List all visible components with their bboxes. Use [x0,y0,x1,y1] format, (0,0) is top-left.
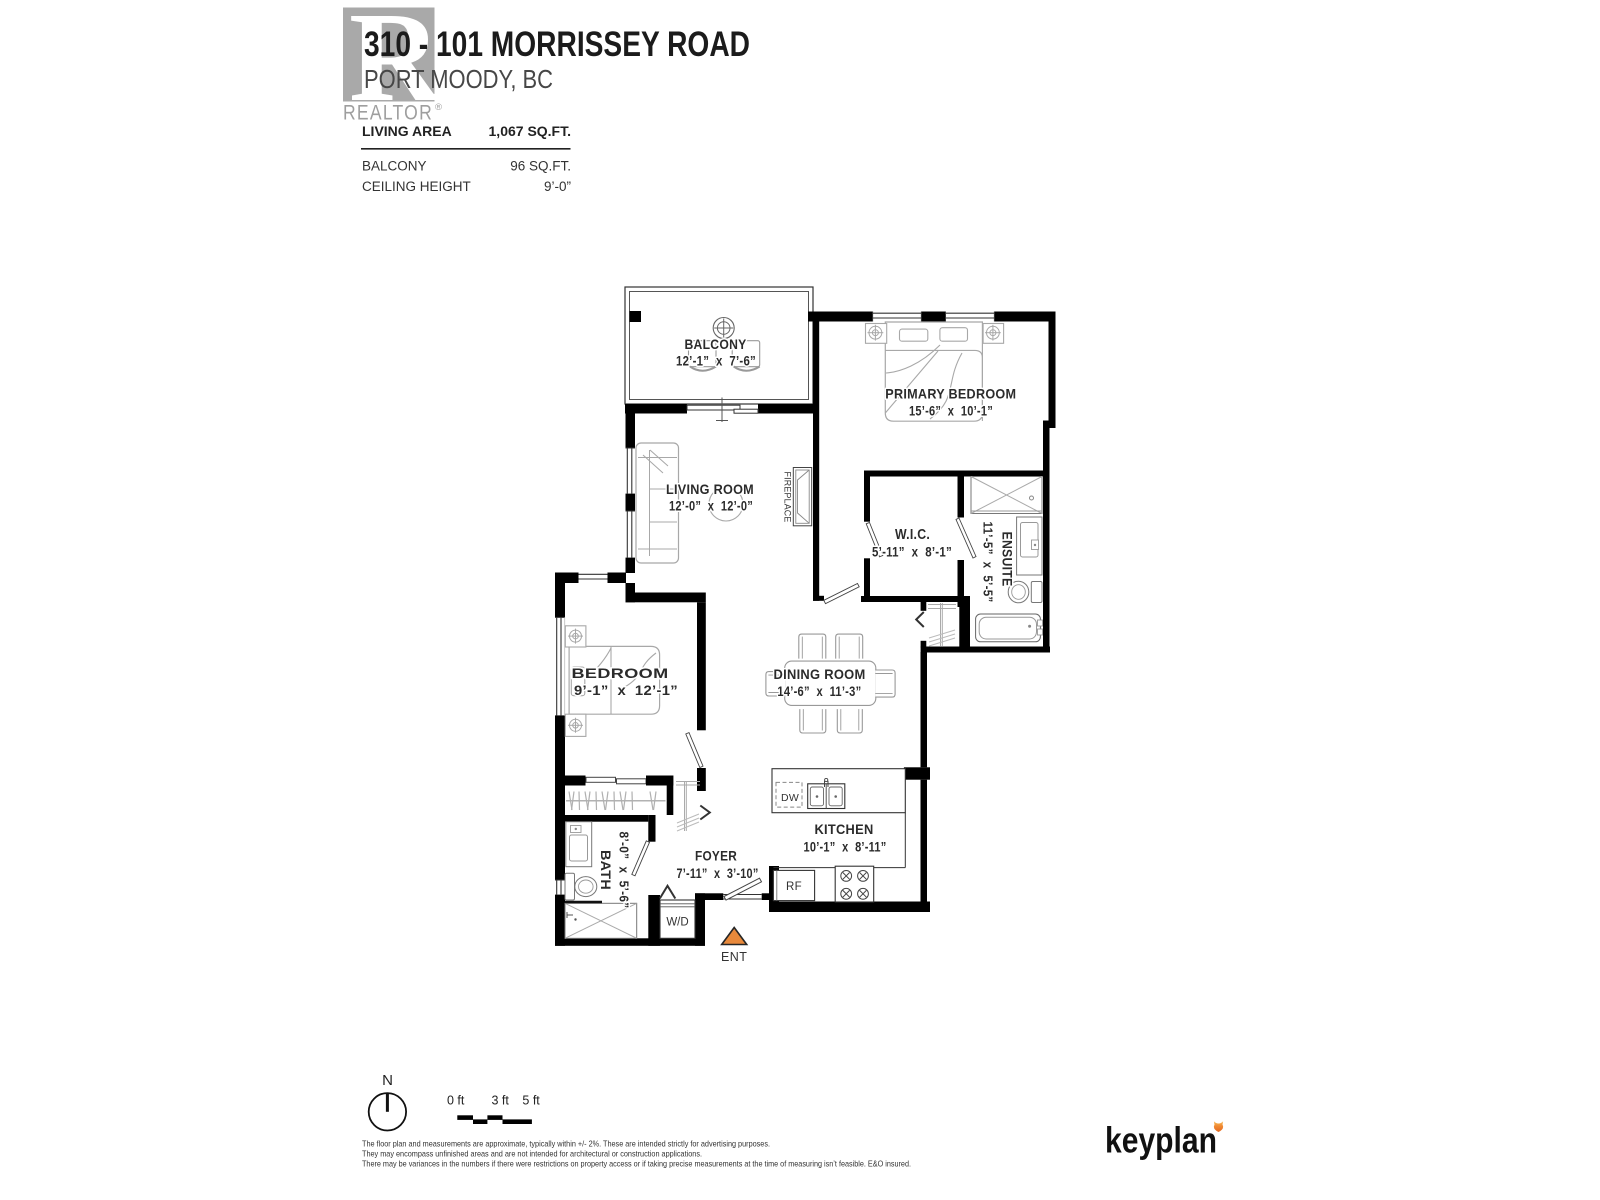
svg-text:96 SQ.FT.: 96 SQ.FT. [510,159,571,174]
svg-text:7’-11” x 3’-10”: 7’-11” x 3’-10” [677,866,759,881]
svg-text:10’-1” x 8’-11”: 10’-1” x 8’-11” [804,840,887,855]
svg-text:FOYER: FOYER [695,848,737,864]
svg-text:REALTOR: REALTOR [343,102,433,125]
svg-text:KITCHEN: KITCHEN [815,821,874,837]
svg-text:RF: RF [786,881,802,893]
svg-text:ENSUITE: ENSUITE [1000,532,1015,587]
svg-text:BALCONY: BALCONY [685,336,747,352]
svg-text:5’-11” x 8’-1”: 5’-11” x 8’-1” [872,545,952,560]
svg-text:LIVING ROOM: LIVING ROOM [666,481,754,497]
svg-text:0 ft: 0 ft [447,1094,465,1108]
svg-text:BALCONY: BALCONY [362,159,427,174]
svg-text:BATH: BATH [598,850,614,890]
svg-text:BEDROOM: BEDROOM [572,665,669,681]
svg-text:9’-0”: 9’-0” [544,179,571,194]
svg-text:They may encompass unfinished: They may encompass unfinished areas and … [362,1149,702,1159]
svg-text:keyplan: keyplan [1105,1120,1217,1161]
svg-text:FIREPLACE: FIREPLACE [782,472,793,523]
svg-text:®: ® [435,102,442,113]
svg-text:3 ft: 3 ft [492,1094,510,1108]
svg-text:There may be variances in the: There may be variances in the numbers if… [362,1159,911,1169]
svg-text:1,067 SQ.FT.: 1,067 SQ.FT. [489,123,571,139]
svg-text:CEILING HEIGHT: CEILING HEIGHT [362,179,471,194]
svg-text:ENT: ENT [721,950,748,964]
svg-text:LIVING AREA: LIVING AREA [362,123,452,139]
svg-text:5 ft: 5 ft [522,1094,540,1108]
svg-text:DINING ROOM: DINING ROOM [774,666,866,682]
svg-text:310 - 101 MORRISSEY ROAD: 310 - 101 MORRISSEY ROAD [364,25,750,64]
svg-text:The floor plan and measurement: The floor plan and measurements are appr… [362,1139,770,1149]
svg-text:14’-6” x 11’-3”: 14’-6” x 11’-3” [777,684,861,699]
svg-text:11’-5” x 5’-5”: 11’-5” x 5’-5” [981,522,996,603]
svg-text:W.I.C.: W.I.C. [895,527,930,543]
svg-text:9’-1” x 12’-1”: 9’-1” x 12’-1” [574,683,678,698]
svg-text:N: N [382,1072,393,1089]
svg-text:PRIMARY BEDROOM: PRIMARY BEDROOM [885,386,1016,402]
svg-text:8’-0” x 5’-6”: 8’-0” x 5’-6” [617,832,631,909]
svg-text:DW: DW [781,792,799,804]
svg-text:PORT MOODY, BC: PORT MOODY, BC [364,64,553,94]
svg-text:12’-0” x 12’-0”: 12’-0” x 12’-0” [669,499,753,514]
svg-text:12’-1” x 7’-6”: 12’-1” x 7’-6” [676,354,756,369]
svg-text:W/D: W/D [666,917,688,929]
svg-text:15’-6” x 10’-1”: 15’-6” x 10’-1” [909,404,993,419]
